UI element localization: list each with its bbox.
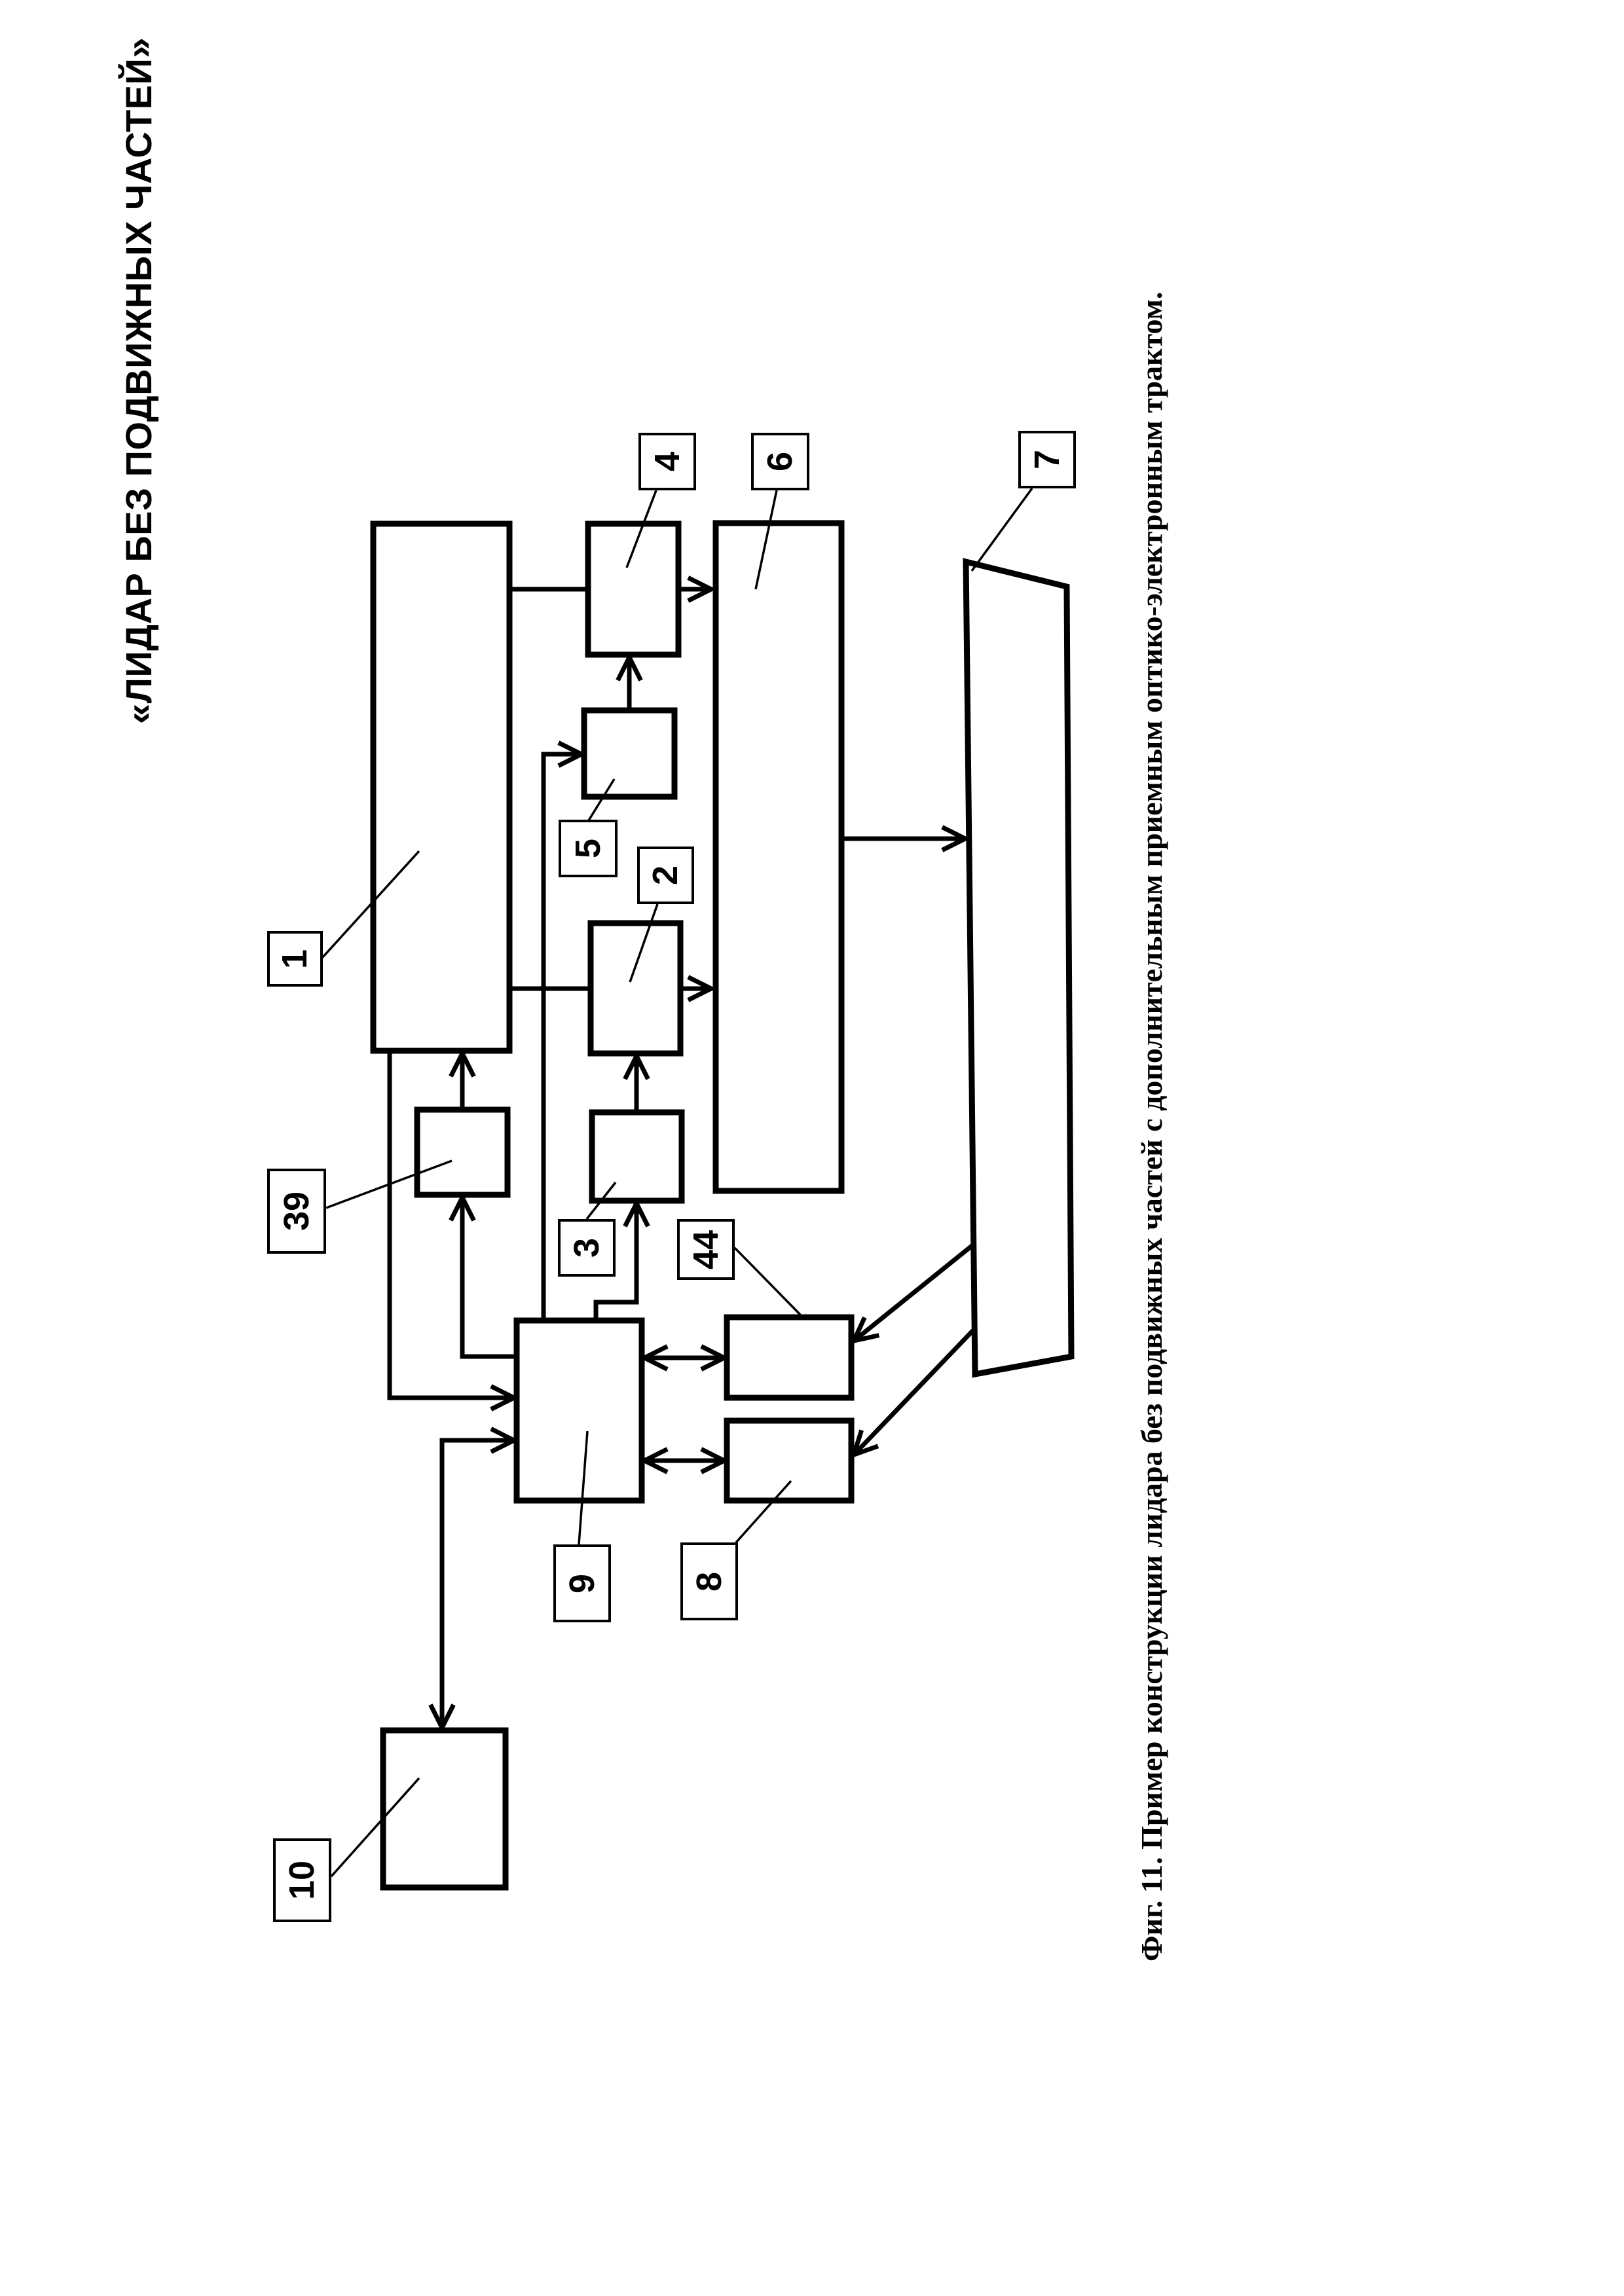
ref-label-44: 44 bbox=[677, 1219, 735, 1280]
ref-label-7: 7 bbox=[1018, 431, 1076, 488]
figure-title: «ЛИДАР БЕЗ ПОДВИЖНЫХ ЧАСТЕЙ» bbox=[118, 37, 160, 724]
ref-label-3: 3 bbox=[558, 1219, 616, 1277]
ref-label-7-text: 7 bbox=[1029, 450, 1065, 469]
ref-label-9-text: 9 bbox=[564, 1573, 600, 1593]
figure-caption: Фиг. 11. Пример конструкции лидара без п… bbox=[1134, 292, 1170, 1961]
ref-label-44-text: 44 bbox=[688, 1230, 724, 1269]
ref-label-3-text: 3 bbox=[569, 1238, 604, 1258]
ref-label-10-text: 10 bbox=[284, 1861, 320, 1900]
ref-label-1: 1 bbox=[267, 931, 323, 987]
ref-label-5: 5 bbox=[559, 820, 618, 877]
ref-label-6-text: 6 bbox=[762, 452, 798, 471]
ref-label-39: 39 bbox=[267, 1169, 326, 1254]
scanned-patent-page: 145233967944810 «ЛИДАР БЕЗ ПОДВИЖНЫХ ЧАС… bbox=[0, 0, 1624, 2296]
ref-label-4: 4 bbox=[638, 433, 696, 490]
ref-label-2: 2 bbox=[637, 847, 694, 904]
ref-label-8-text: 8 bbox=[692, 1571, 727, 1591]
ref-label-8: 8 bbox=[680, 1542, 738, 1620]
ref-label-1-text: 1 bbox=[277, 949, 312, 968]
ref-label-39-text: 39 bbox=[279, 1192, 314, 1231]
ref-label-6: 6 bbox=[751, 433, 809, 490]
ref-label-5-text: 5 bbox=[570, 839, 606, 858]
ref-label-2-text: 2 bbox=[648, 866, 683, 885]
ref-label-10: 10 bbox=[273, 1838, 331, 1922]
ref-label-9: 9 bbox=[553, 1544, 611, 1622]
ref-label-4-text: 4 bbox=[650, 452, 685, 471]
